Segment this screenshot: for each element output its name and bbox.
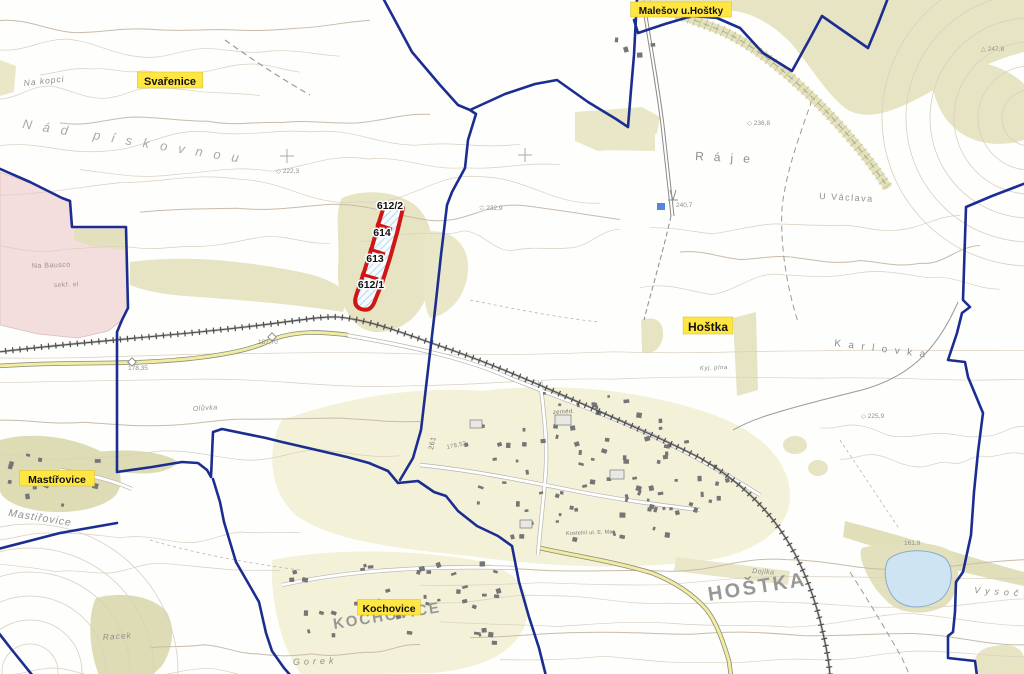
town-area-fill bbox=[272, 387, 790, 566]
track-dashed bbox=[782, 100, 812, 322]
building bbox=[623, 399, 629, 403]
contour-line bbox=[640, 272, 1000, 295]
building bbox=[523, 428, 526, 432]
building bbox=[304, 610, 308, 616]
place-label-text: Mastířovice bbox=[28, 474, 86, 486]
utility-icon bbox=[657, 203, 665, 210]
road-double-line bbox=[641, 0, 671, 216]
toponym-label: Na kopci bbox=[23, 74, 65, 88]
grid-cross bbox=[518, 148, 532, 162]
place-label-text: Svařenice bbox=[144, 76, 196, 88]
building bbox=[636, 412, 642, 418]
toponym-label: Racek bbox=[102, 630, 132, 642]
building bbox=[591, 458, 595, 461]
building bbox=[519, 534, 524, 539]
building bbox=[558, 403, 561, 406]
building bbox=[492, 641, 497, 645]
contour-line bbox=[0, 86, 260, 99]
parcel-number-label: 613 bbox=[366, 253, 384, 265]
building bbox=[574, 508, 578, 512]
building bbox=[659, 419, 663, 423]
vegetation-patch bbox=[423, 231, 468, 318]
building bbox=[482, 594, 487, 597]
building bbox=[701, 492, 704, 497]
pink-area bbox=[0, 172, 128, 338]
boundary-line bbox=[470, 0, 637, 127]
contour-line bbox=[0, 20, 370, 32]
building bbox=[543, 392, 546, 395]
contour-line bbox=[500, 651, 1024, 663]
track-dashed bbox=[840, 440, 900, 530]
place-label: Malešov u.Hoštky bbox=[631, 2, 732, 17]
building bbox=[95, 459, 101, 463]
building bbox=[477, 501, 480, 505]
contour-line bbox=[0, 620, 82, 674]
elevation-label: 161,9 bbox=[904, 540, 921, 547]
vegetation-patch bbox=[783, 436, 807, 454]
building bbox=[697, 476, 701, 482]
toponym-label: Vysočí bbox=[974, 585, 1024, 599]
elevation-label: ◇ 222,3 bbox=[276, 168, 299, 175]
toponym-label: Olůvka bbox=[193, 403, 218, 413]
place-label: Mastířovice bbox=[20, 471, 95, 487]
toponym-label: Karlovka bbox=[834, 338, 934, 361]
building bbox=[560, 491, 564, 495]
building bbox=[516, 459, 519, 462]
toponym-label: Kyj. pína bbox=[700, 365, 728, 372]
toponym-label: Ráje bbox=[695, 149, 760, 166]
building bbox=[480, 561, 486, 566]
place-label: Hoštka bbox=[683, 317, 733, 334]
cadastral-map-view[interactable]: Na kopciNád pískovnouRájeU VáclavaKarlov… bbox=[0, 0, 1024, 674]
elevation-label: 178,35 bbox=[128, 365, 148, 372]
boundary-line bbox=[948, 183, 1024, 674]
map-symbols bbox=[280, 148, 678, 210]
building bbox=[368, 565, 374, 569]
place-label: Kochovice bbox=[358, 600, 421, 616]
contour-line bbox=[840, 453, 1024, 467]
building bbox=[651, 43, 656, 47]
elevation-label: ◇ 236,8 bbox=[747, 120, 770, 127]
contour-line bbox=[470, 632, 1024, 645]
building bbox=[578, 450, 582, 455]
building bbox=[569, 506, 574, 511]
track bbox=[733, 302, 958, 430]
vegetation-patch bbox=[932, 60, 1024, 144]
building bbox=[332, 633, 336, 637]
building bbox=[590, 479, 596, 484]
toponym-label: Gorek bbox=[293, 655, 338, 667]
contour-line bbox=[0, 176, 600, 203]
toponym-label: sekř. el bbox=[54, 281, 79, 289]
toponym-label: zeměd. bbox=[552, 409, 575, 416]
track-dashed bbox=[644, 216, 671, 320]
building bbox=[289, 577, 294, 582]
building bbox=[407, 631, 413, 635]
building bbox=[619, 512, 625, 517]
contour-line bbox=[0, 596, 106, 674]
contour-line bbox=[0, 39, 340, 57]
building bbox=[8, 480, 12, 484]
building bbox=[38, 458, 43, 463]
toponym-label: Na Bausco bbox=[32, 262, 71, 270]
elevation-label: ◇ 225,9 bbox=[861, 413, 884, 420]
building bbox=[426, 570, 431, 574]
building bbox=[506, 443, 511, 449]
parcel-number-label: 612/2 bbox=[377, 200, 403, 212]
building bbox=[540, 439, 545, 444]
track-dashed bbox=[470, 300, 600, 322]
building bbox=[516, 501, 520, 507]
track-dashed bbox=[225, 40, 310, 95]
elevation-label: △ 247,8 bbox=[981, 46, 1004, 53]
building bbox=[717, 496, 721, 501]
building bbox=[647, 507, 651, 512]
boundary-line bbox=[0, 632, 33, 674]
building bbox=[623, 455, 627, 460]
contour-line bbox=[60, 114, 430, 124]
building bbox=[637, 52, 643, 57]
building bbox=[502, 481, 506, 484]
building bbox=[605, 438, 610, 442]
place-label-text: Malešov u.Hoštky bbox=[639, 6, 724, 17]
place-label: Svařenice bbox=[137, 72, 202, 88]
vegetation-patch bbox=[733, 312, 758, 396]
building bbox=[456, 589, 461, 594]
large-building bbox=[555, 415, 571, 425]
place-label-text: Kochovice bbox=[362, 603, 415, 615]
vegetation-patch bbox=[641, 318, 663, 353]
contour-line bbox=[680, 246, 980, 265]
building bbox=[623, 46, 629, 52]
contour-line bbox=[650, 216, 960, 234]
building bbox=[559, 513, 562, 516]
building bbox=[664, 532, 670, 538]
elevation-label: ✩ 232,9 bbox=[479, 204, 503, 212]
toponym-label: U Václava bbox=[819, 191, 874, 204]
pond bbox=[885, 551, 951, 607]
vegetation-patch bbox=[974, 645, 1024, 674]
building bbox=[481, 628, 486, 633]
elevation-label: 187,70 bbox=[258, 339, 278, 346]
building bbox=[669, 507, 673, 510]
vegetation-patch bbox=[130, 259, 348, 312]
map-canvas[interactable]: Na kopciNád pískovnouRájeU VáclavaKarlov… bbox=[0, 0, 1024, 674]
building bbox=[615, 37, 619, 42]
building bbox=[647, 499, 650, 502]
vegetation-patch bbox=[808, 460, 828, 476]
contour-line bbox=[80, 157, 560, 176]
building bbox=[494, 594, 499, 598]
parcel-number-label: 614 bbox=[373, 227, 391, 239]
building bbox=[570, 425, 576, 430]
elevation-label: 240,7 bbox=[676, 202, 693, 209]
parcel-number-label: 612/1 bbox=[358, 279, 384, 291]
building bbox=[423, 595, 426, 599]
large-building bbox=[470, 420, 482, 428]
building bbox=[522, 442, 527, 447]
building bbox=[663, 455, 669, 460]
building bbox=[657, 460, 661, 464]
building bbox=[607, 395, 610, 398]
large-building bbox=[610, 470, 624, 479]
place-label-text: Hoštka bbox=[688, 320, 728, 334]
contour-line bbox=[820, 425, 1024, 437]
building bbox=[488, 632, 494, 638]
building bbox=[674, 479, 677, 482]
grid-cross bbox=[280, 149, 294, 163]
large-building bbox=[520, 520, 532, 528]
toponym-label: Nád pískovnou bbox=[22, 116, 251, 167]
vegetation-patch bbox=[0, 60, 16, 96]
vegetation-patch bbox=[600, 131, 655, 151]
